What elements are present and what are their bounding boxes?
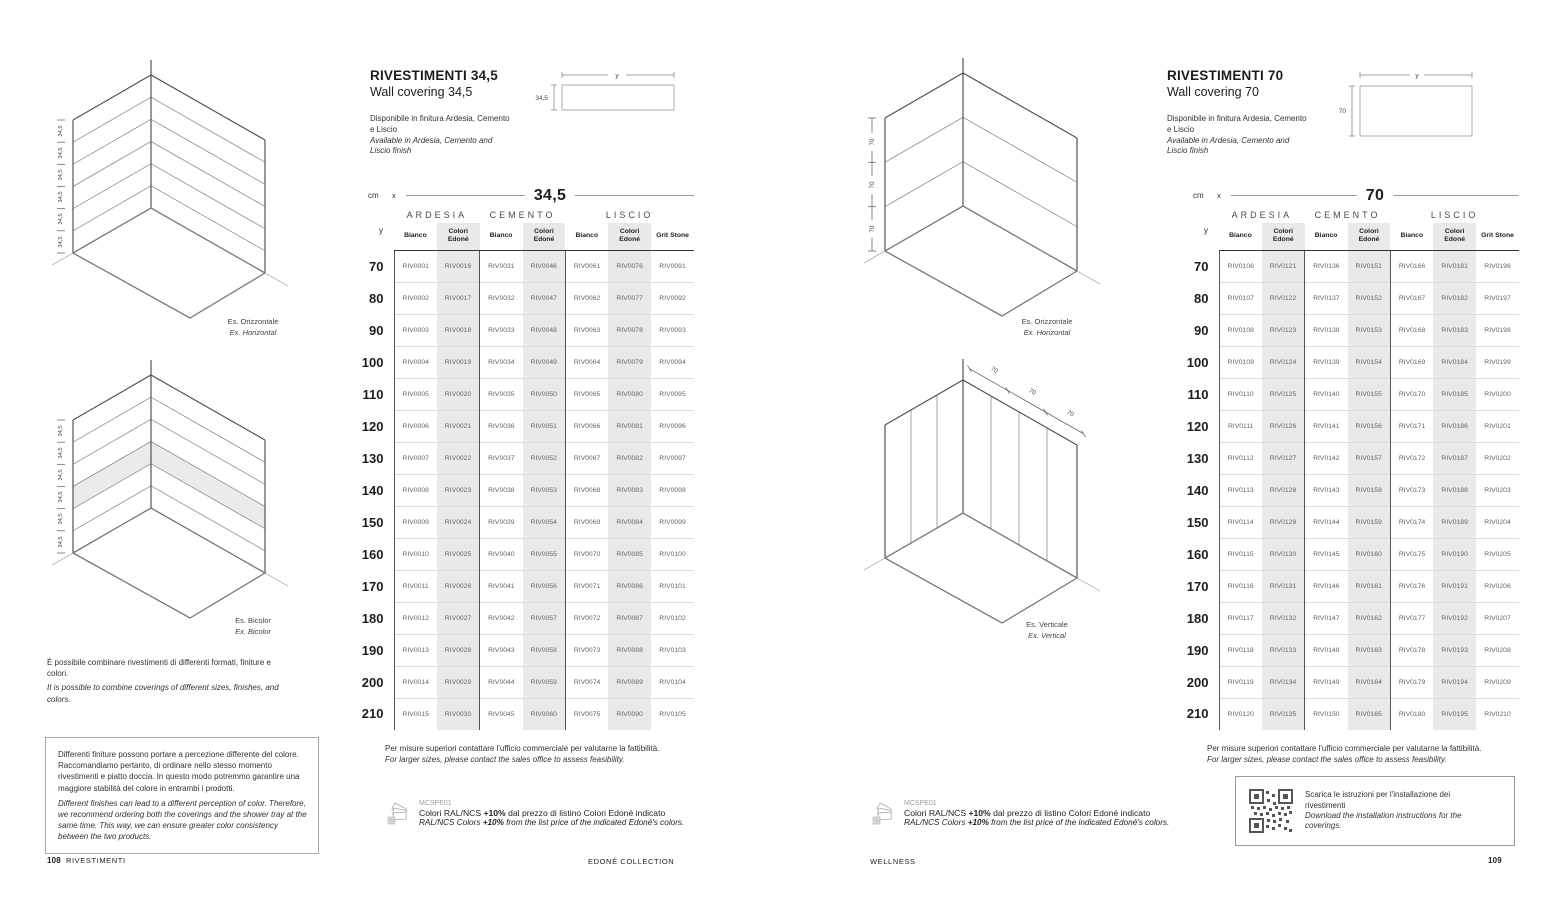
diagram-vertical-70: 70 70 70: [852, 355, 1142, 645]
title-block-34-5: RIVESTIMENTI 34,5 Wall covering 34,5: [370, 68, 498, 99]
x-axis-label: x: [1217, 191, 1231, 200]
larger-sizes-note: Per misure superiori contattare l'uffici…: [385, 743, 715, 765]
scale-line: [1231, 195, 1357, 196]
y-value: 70: [1183, 250, 1219, 282]
caption-en: Ex. Horizontal: [987, 328, 1107, 339]
product-code: RIV0169: [1390, 346, 1433, 378]
combine-note-it: È possibile combinare rivestimenti di di…: [47, 657, 279, 679]
column-header-row: yBiancoColoriEdonéBiancoColoriEdonéBianc…: [1183, 223, 1519, 250]
product-code: RIV0124: [1262, 346, 1305, 378]
y-value: 120: [1183, 410, 1219, 442]
product-code: RIV0105: [651, 698, 694, 730]
column-header: ColoriEdoné: [1262, 223, 1305, 250]
size-row: 180RIV0117RIV0132RIV0147RIV0162RIV0177RI…: [1183, 602, 1519, 634]
product-code: RIV0209: [1476, 666, 1519, 698]
product-code: RIV0145: [1305, 538, 1348, 570]
product-code: RIV0027: [437, 602, 480, 634]
column-header: ColoriEdoné: [1433, 223, 1476, 250]
product-code: RIV0100: [651, 538, 694, 570]
column-header: Grit Stone: [651, 223, 694, 250]
height-dim-label: 34,5: [535, 95, 548, 102]
product-code: RIV0204: [1476, 506, 1519, 538]
product-code: RIV0031: [480, 250, 523, 282]
product-code: RIV0001: [394, 250, 437, 282]
product-code: RIV0030: [437, 698, 480, 730]
product-code: RIV0163: [1348, 634, 1391, 666]
finish-group-label: CEMENTO: [480, 207, 566, 223]
finish-group-label: LISCIO: [1390, 207, 1519, 223]
product-code: RIV0023: [437, 474, 480, 506]
column-header: Bianco: [480, 223, 523, 250]
product-code: RIV0024: [437, 506, 480, 538]
product-code: RIV0193: [1433, 634, 1476, 666]
size-spec-rect-70: y 70: [1330, 68, 1480, 146]
product-code: RIV0161: [1348, 570, 1391, 602]
product-code: RIV0050: [523, 378, 566, 410]
product-code: RIV0065: [565, 378, 608, 410]
combine-note-en: It is possible to combine coverings of d…: [47, 682, 279, 704]
product-code: RIV0201: [1476, 410, 1519, 442]
product-code: RIV0096: [651, 410, 694, 442]
size-row: 100RIV0004RIV0019RIV0034RIV0049RIV0064RI…: [358, 346, 694, 378]
size-title: 34,5: [525, 187, 575, 205]
product-code: RIV0178: [1390, 634, 1433, 666]
product-code: RIV0170: [1390, 378, 1433, 410]
product-code: RIV0118: [1219, 634, 1262, 666]
product-code: RIV0047: [523, 282, 566, 314]
y-value: 120: [358, 410, 394, 442]
size-row: 90RIV0003RIV0018RIV0033RIV0048RIV0063RIV…: [358, 314, 694, 346]
dim-label: 34,5: [58, 169, 64, 180]
size-table-34-5: cmx34,5ARDESIACEMENTOLISCIOyBiancoColori…: [358, 188, 694, 730]
product-code: RIV0073: [565, 634, 608, 666]
product-code: RIV0160: [1348, 538, 1391, 570]
product-code: RIV0125: [1262, 378, 1305, 410]
footer-collection: EDONÉ COLLECTION: [588, 857, 674, 866]
page-number-left: 108: [47, 856, 61, 865]
product-code: RIV0058: [523, 634, 566, 666]
product-code: RIV0157: [1348, 442, 1391, 474]
mcspe-en: RAL/NCS Colors +10% from the list price …: [419, 818, 684, 827]
page-subtitle: Wall covering 70: [1167, 85, 1283, 99]
y-axis-label: y: [1183, 223, 1219, 250]
product-code: RIV0099: [651, 506, 694, 538]
product-code: RIV0057: [523, 602, 566, 634]
product-code: RIV0038: [480, 474, 523, 506]
product-code: RIV0162: [1348, 602, 1391, 634]
availability-it: Disponibile in finitura Ardesia, Cemento…: [370, 114, 510, 136]
caption-it: Es. Bicolor: [193, 616, 313, 627]
product-code: RIV0134: [1262, 666, 1305, 698]
table-scale-row: cmx70: [1183, 188, 1519, 203]
product-code: RIV0183: [1433, 314, 1476, 346]
combine-note: È possibile combinare rivestimenti di di…: [47, 657, 279, 705]
larger-sizes-note: Per misure superiori contattare l'uffici…: [1207, 743, 1537, 765]
product-code: RIV0048: [523, 314, 566, 346]
product-code: RIV0195: [1433, 698, 1476, 730]
product-code: RIV0200: [1476, 378, 1519, 410]
product-code: RIV0103: [651, 634, 694, 666]
page-title: RIVESTIMENTI 34,5: [370, 68, 498, 83]
product-code: RIV0156: [1348, 410, 1391, 442]
mcspe-code: MCSPE01: [904, 800, 1169, 807]
diagram-horizontal-70: 70 70 70: [852, 58, 1142, 348]
y-value: 90: [358, 314, 394, 346]
product-code: RIV0154: [1348, 346, 1391, 378]
product-code: RIV0083: [608, 474, 651, 506]
product-code: RIV0179: [1390, 666, 1433, 698]
product-code: RIV0055: [523, 538, 566, 570]
product-code: RIV0164: [1348, 666, 1391, 698]
caption-horizontal-34-5: Es. Orizzontale Ex. Horizontal: [193, 317, 313, 338]
product-code: RIV0206: [1476, 570, 1519, 602]
product-code: RIV0078: [608, 314, 651, 346]
product-code: RIV0004: [394, 346, 437, 378]
product-code: RIV0011: [394, 570, 437, 602]
dim-label: 70: [869, 138, 876, 145]
product-code: RIV0133: [1262, 634, 1305, 666]
size-row: 190RIV0013RIV0028RIV0043RIV0058RIV0073RI…: [358, 634, 694, 666]
product-code: RIV0155: [1348, 378, 1391, 410]
caption-it: Es. Verticale: [987, 620, 1107, 631]
product-code: RIV0127: [1262, 442, 1305, 474]
footer-section-right: WELLNESS: [870, 857, 916, 866]
product-code: RIV0176: [1390, 570, 1433, 602]
size-row: 90RIV0108RIV0123RIV0138RIV0153RIV0168RIV…: [1183, 314, 1519, 346]
scale-line: [1393, 195, 1519, 196]
product-code: RIV0063: [565, 314, 608, 346]
product-code: RIV0140: [1305, 378, 1348, 410]
product-code: RIV0123: [1262, 314, 1305, 346]
column-header: Bianco: [1305, 223, 1348, 250]
ral-ncs-note: MCSPE01 Colori RAL/NCS +10% dal prezzo d…: [387, 800, 684, 827]
product-code: RIV0014: [394, 666, 437, 698]
product-code: RIV0076: [608, 250, 651, 282]
product-code: RIV0040: [480, 538, 523, 570]
size-row: 210RIV0120RIV0135RIV0150RIV0165RIV0180RI…: [1183, 698, 1519, 730]
dim-label: 34,5: [58, 236, 64, 247]
dim-label: 70: [869, 181, 876, 188]
product-code: RIV0064: [565, 346, 608, 378]
product-code: RIV0202: [1476, 442, 1519, 474]
dim-label: 34,5: [58, 469, 64, 480]
y-value: 210: [1183, 698, 1219, 730]
product-code: RIV0093: [651, 314, 694, 346]
size-row: 130RIV0112RIV0127RIV0142RIV0157RIV0172RI…: [1183, 442, 1519, 474]
product-code: RIV0082: [608, 442, 651, 474]
product-code: RIV0122: [1262, 282, 1305, 314]
size-row: 180RIV0012RIV0027RIV0042RIV0057RIV0072RI…: [358, 602, 694, 634]
product-code: RIV0194: [1433, 666, 1476, 698]
dim-label: 34,5: [58, 425, 64, 436]
y-value: 100: [1183, 346, 1219, 378]
product-code: RIV0062: [565, 282, 608, 314]
product-code: RIV0034: [480, 346, 523, 378]
product-code: RIV0061: [565, 250, 608, 282]
product-code: RIV0192: [1433, 602, 1476, 634]
product-code: RIV0022: [437, 442, 480, 474]
product-code: RIV0112: [1219, 442, 1262, 474]
y-value: 180: [358, 602, 394, 634]
y-value: 200: [1183, 666, 1219, 698]
size-row: 120RIV0006RIV0021RIV0036RIV0051RIV0066RI…: [358, 410, 694, 442]
product-code: RIV0085: [608, 538, 651, 570]
product-code: RIV0066: [565, 410, 608, 442]
unit-label: cm: [358, 191, 392, 200]
product-code: RIV0008: [394, 474, 437, 506]
product-code: RIV0152: [1348, 282, 1391, 314]
product-code: RIV0119: [1219, 666, 1262, 698]
product-code: RIV0060: [523, 698, 566, 730]
product-code: RIV0013: [394, 634, 437, 666]
larger-note-it: Per misure superiori contattare l'uffici…: [1207, 743, 1537, 754]
product-code: RIV0186: [1433, 410, 1476, 442]
warning-it: Differenti finiture possono portare a pe…: [58, 749, 308, 794]
dim-label: 70: [1066, 409, 1076, 419]
product-code: RIV0168: [1390, 314, 1433, 346]
product-code: RIV0019: [437, 346, 480, 378]
y-value: 160: [1183, 538, 1219, 570]
product-code: RIV0184: [1433, 346, 1476, 378]
dim-label: 34,5: [58, 513, 64, 524]
product-code: RIV0149: [1305, 666, 1348, 698]
product-code: RIV0115: [1219, 538, 1262, 570]
y-value: 150: [358, 506, 394, 538]
product-code: RIV0035: [480, 378, 523, 410]
x-axis-label: x: [392, 191, 406, 200]
product-code: RIV0021: [437, 410, 480, 442]
size-row: 110RIV0110RIV0125RIV0140RIV0155RIV0170RI…: [1183, 378, 1519, 410]
product-code: RIV0029: [437, 666, 480, 698]
product-code: RIV0094: [651, 346, 694, 378]
product-code: RIV0196: [1476, 250, 1519, 282]
product-code: RIV0146: [1305, 570, 1348, 602]
product-code: RIV0107: [1219, 282, 1262, 314]
product-code: RIV0039: [480, 506, 523, 538]
product-code: RIV0165: [1348, 698, 1391, 730]
page-subtitle: Wall covering 34,5: [370, 85, 498, 99]
product-code: RIV0180: [1390, 698, 1433, 730]
product-code: RIV0167: [1390, 282, 1433, 314]
product-code: RIV0042: [480, 602, 523, 634]
larger-note-en: For larger sizes, please contact the sal…: [385, 754, 715, 765]
product-code: RIV0151: [1348, 250, 1391, 282]
column-header-row: yBiancoColoriEdonéBiancoColoriEdonéBianc…: [358, 223, 694, 250]
diagram-bicolor-34-5: 34,5 34,5 34,5 34,5 34,5 34,5: [40, 360, 330, 650]
product-code: RIV0010: [394, 538, 437, 570]
y-value: 130: [358, 442, 394, 474]
size-row: 80RIV0002RIV0017RIV0032RIV0047RIV0062RIV…: [358, 282, 694, 314]
product-code: RIV0131: [1262, 570, 1305, 602]
product-code: RIV0009: [394, 506, 437, 538]
unit-label: cm: [1183, 191, 1217, 200]
size-row: 130RIV0007RIV0022RIV0037RIV0052RIV0067RI…: [358, 442, 694, 474]
y-dim-label: y: [1415, 73, 1419, 80]
product-code: RIV0075: [565, 698, 608, 730]
product-code: RIV0177: [1390, 602, 1433, 634]
dim-label: 70: [990, 365, 1000, 375]
product-code: RIV0116: [1219, 570, 1262, 602]
caption-it: Es. Orizzontale: [193, 317, 313, 328]
mcspe-en: RAL/NCS Colors +10% from the list price …: [904, 818, 1169, 827]
column-header: ColoriEdoné: [523, 223, 566, 250]
product-code: RIV0041: [480, 570, 523, 602]
size-row: 120RIV0111RIV0126RIV0141RIV0156RIV0171RI…: [1183, 410, 1519, 442]
product-code: RIV0032: [480, 282, 523, 314]
y-value: 80: [1183, 282, 1219, 314]
dim-label: 34,5: [58, 491, 64, 502]
product-code: RIV0171: [1390, 410, 1433, 442]
product-code: RIV0138: [1305, 314, 1348, 346]
product-code: RIV0203: [1476, 474, 1519, 506]
size-row: 150RIV0009RIV0024RIV0039RIV0054RIV0069RI…: [358, 506, 694, 538]
size-row: 140RIV0113RIV0128RIV0143RIV0158RIV0173RI…: [1183, 474, 1519, 506]
size-spec-rect-34-5: y 34,5: [530, 68, 680, 120]
larger-note-it: Per misure superiori contattare l'uffici…: [385, 743, 715, 754]
installation-instructions-box: Scarica le istruzioni per l'installazion…: [1235, 776, 1515, 846]
y-value: 90: [1183, 314, 1219, 346]
product-code: RIV0128: [1262, 474, 1305, 506]
product-code: RIV0046: [523, 250, 566, 282]
product-code: RIV0208: [1476, 634, 1519, 666]
dim-label: 34,5: [58, 147, 64, 158]
y-value: 170: [1183, 570, 1219, 602]
caption-en: Ex. Bicolor: [193, 627, 313, 638]
product-code: RIV0132: [1262, 602, 1305, 634]
finish-group-label: ARDESIA: [394, 207, 480, 223]
product-code: RIV0045: [480, 698, 523, 730]
scale-line: [575, 195, 694, 196]
product-code: RIV0153: [1348, 314, 1391, 346]
size-row: 150RIV0114RIV0129RIV0144RIV0159RIV0174RI…: [1183, 506, 1519, 538]
availability-it: Disponibile in finitura Ardesia, Cemento…: [1167, 114, 1307, 136]
column-header: Bianco: [1390, 223, 1433, 250]
mcspe-it: Colori RAL/NCS +10% dal prezzo di listin…: [419, 808, 684, 818]
y-value: 140: [1183, 474, 1219, 506]
size-table-70: cmx70ARDESIACEMENTOLISCIOyBiancoColoriEd…: [1183, 188, 1519, 730]
product-code: RIV0129: [1262, 506, 1305, 538]
product-code: RIV0120: [1219, 698, 1262, 730]
color-fan-icon: [872, 800, 896, 826]
size-row: 160RIV0010RIV0025RIV0040RIV0055RIV0070RI…: [358, 538, 694, 570]
product-code: RIV0113: [1219, 474, 1262, 506]
product-code: RIV0095: [651, 378, 694, 410]
product-code: RIV0106: [1219, 250, 1262, 282]
product-code: RIV0081: [608, 410, 651, 442]
finish-group-row: ARDESIACEMENTOLISCIO: [358, 207, 694, 223]
table-scale-row: cmx34,5: [358, 188, 694, 203]
product-code: RIV0104: [651, 666, 694, 698]
product-code: RIV0071: [565, 570, 608, 602]
column-header: Bianco: [565, 223, 608, 250]
y-value: 180: [1183, 602, 1219, 634]
size-row: 170RIV0116RIV0131RIV0146RIV0161RIV0176RI…: [1183, 570, 1519, 602]
product-code: RIV0003: [394, 314, 437, 346]
product-code: RIV0090: [608, 698, 651, 730]
product-code: RIV0108: [1219, 314, 1262, 346]
product-code: RIV0147: [1305, 602, 1348, 634]
availability-note: Disponibile in finitura Ardesia, Cemento…: [370, 114, 510, 157]
y-value: 80: [358, 282, 394, 314]
product-code: RIV0044: [480, 666, 523, 698]
product-code: RIV0056: [523, 570, 566, 602]
y-value: 70: [358, 250, 394, 282]
product-code: RIV0141: [1305, 410, 1348, 442]
product-code: RIV0070: [565, 538, 608, 570]
dim-label: 34,5: [58, 447, 64, 458]
product-code: RIV0026: [437, 570, 480, 602]
product-code: RIV0068: [565, 474, 608, 506]
size-row: 160RIV0115RIV0130RIV0145RIV0160RIV0175RI…: [1183, 538, 1519, 570]
larger-note-en: For larger sizes, please contact the sal…: [1207, 754, 1537, 765]
product-code: RIV0199: [1476, 346, 1519, 378]
product-code: RIV0110: [1219, 378, 1262, 410]
product-code: RIV0185: [1433, 378, 1476, 410]
qr-note-en: Download the installation instructions f…: [1305, 811, 1480, 832]
product-code: RIV0087: [608, 602, 651, 634]
y-value: 190: [1183, 634, 1219, 666]
product-code: RIV0016: [437, 250, 480, 282]
product-code: RIV0117: [1219, 602, 1262, 634]
product-code: RIV0139: [1305, 346, 1348, 378]
product-code: RIV0028: [437, 634, 480, 666]
product-code: RIV0102: [651, 602, 694, 634]
size-row: 70RIV0106RIV0121RIV0136RIV0151RIV0166RIV…: [1183, 250, 1519, 282]
product-code: RIV0144: [1305, 506, 1348, 538]
product-code: RIV0205: [1476, 538, 1519, 570]
product-code: RIV0005: [394, 378, 437, 410]
ral-ncs-note: MCSPE01 Colori RAL/NCS +10% dal prezzo d…: [872, 800, 1169, 827]
caption-horizontal-70: Es. Orizzontale Ex. Horizontal: [987, 317, 1107, 338]
product-code: RIV0210: [1476, 698, 1519, 730]
codes-table: ARDESIACEMENTOLISCIOyBiancoColoriEdonéBi…: [1183, 207, 1519, 730]
dim-label: 34,5: [58, 213, 64, 224]
product-code: RIV0114: [1219, 506, 1262, 538]
page-title: RIVESTIMENTI 70: [1167, 68, 1283, 83]
footer-left: 108RIVESTIMENTI: [47, 856, 126, 865]
caption-vertical: Es. Verticale Ex. Vertical: [987, 620, 1107, 641]
product-code: RIV0018: [437, 314, 480, 346]
product-code: RIV0143: [1305, 474, 1348, 506]
caption-it: Es. Orizzontale: [987, 317, 1107, 328]
page-number-right: 109: [1488, 856, 1507, 865]
product-code: RIV0207: [1476, 602, 1519, 634]
product-code: RIV0101: [651, 570, 694, 602]
product-code: RIV0025: [437, 538, 480, 570]
y-value: 140: [358, 474, 394, 506]
color-warning-box: Differenti finiture possono portare a pe…: [45, 737, 319, 854]
qr-code-icon: [1249, 789, 1293, 833]
product-code: RIV0097: [651, 442, 694, 474]
product-code: RIV0189: [1433, 506, 1476, 538]
dim-label: 34,5: [58, 191, 64, 202]
product-code: RIV0187: [1433, 442, 1476, 474]
product-code: RIV0007: [394, 442, 437, 474]
y-value: 130: [1183, 442, 1219, 474]
product-code: RIV0036: [480, 410, 523, 442]
product-code: RIV0111: [1219, 410, 1262, 442]
diagram-horizontal-34-5: 34,5 34,5 34,5 34,5 34,5 34,5: [40, 60, 330, 350]
finish-group-row: ARDESIACEMENTOLISCIO: [1183, 207, 1519, 223]
product-code: RIV0135: [1262, 698, 1305, 730]
product-code: RIV0174: [1390, 506, 1433, 538]
size-row: 200RIV0014RIV0029RIV0044RIV0059RIV0074RI…: [358, 666, 694, 698]
color-fan-icon: [387, 800, 411, 826]
y-value: 200: [358, 666, 394, 698]
y-value: 110: [1183, 378, 1219, 410]
product-code: RIV0084: [608, 506, 651, 538]
product-code: RIV0190: [1433, 538, 1476, 570]
